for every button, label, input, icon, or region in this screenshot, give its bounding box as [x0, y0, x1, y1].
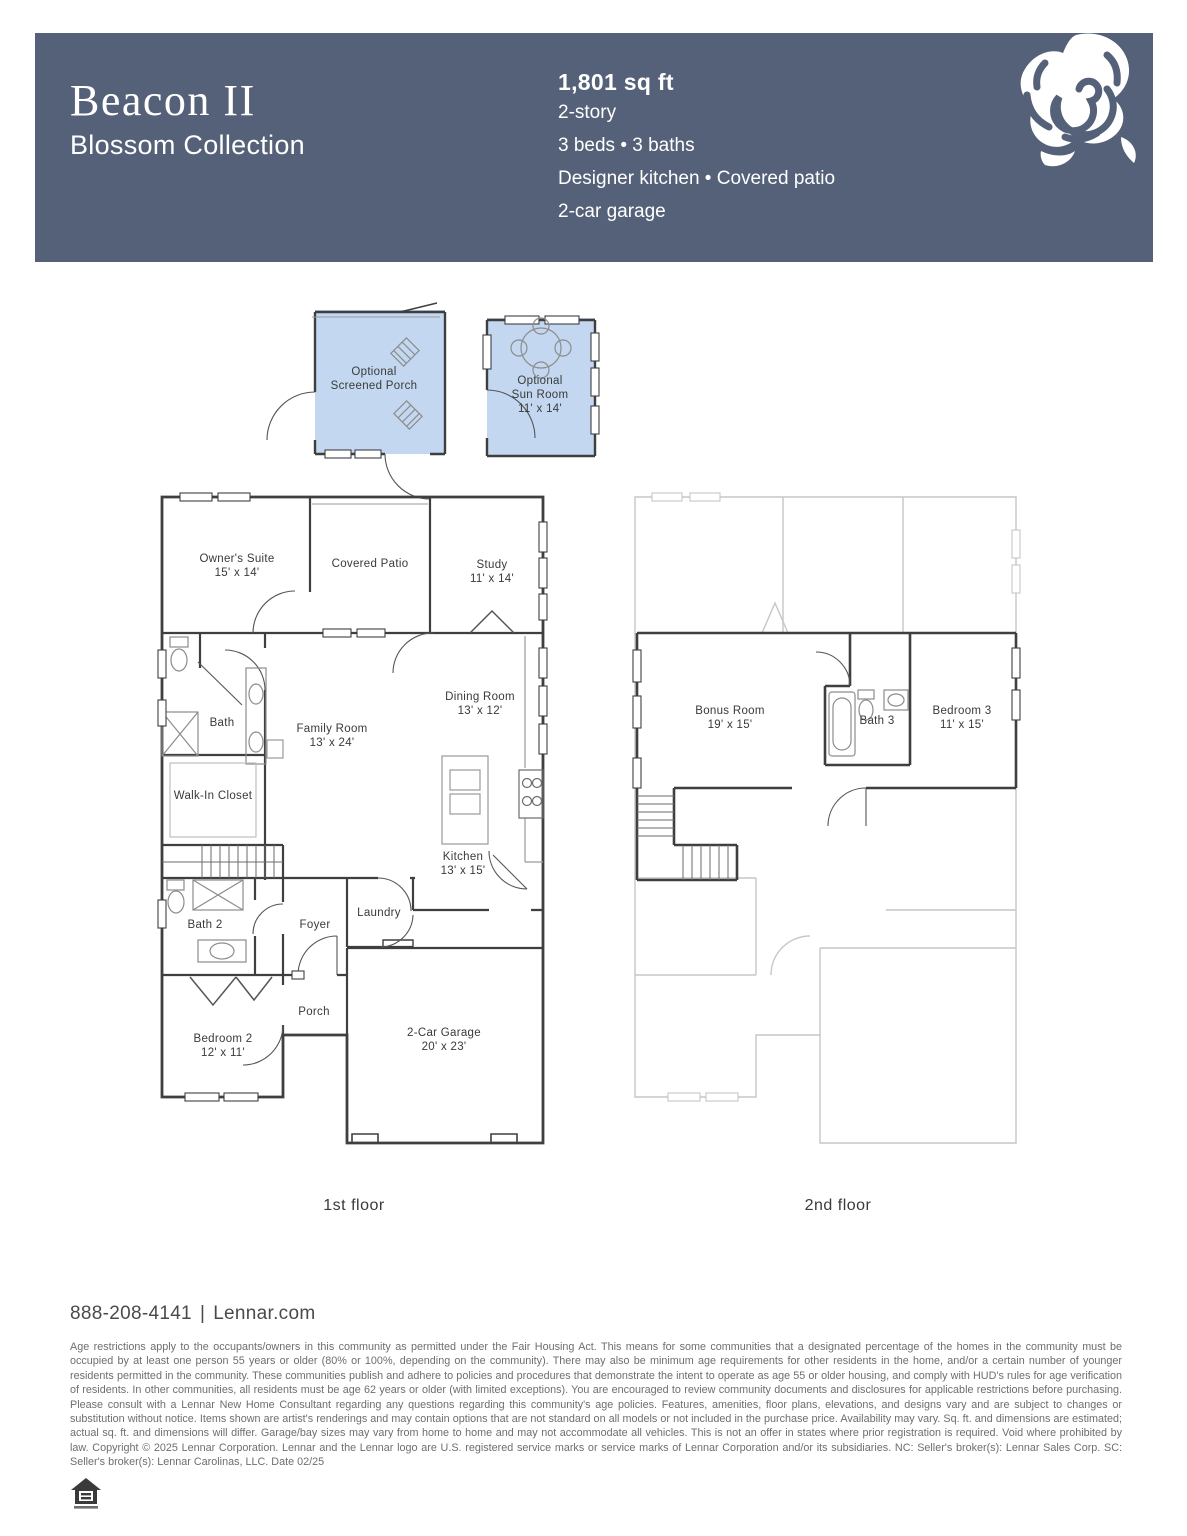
room-label-bedroom-3: Bedroom 3	[933, 705, 992, 717]
room-label-foyer: Foyer	[300, 919, 331, 931]
room-label-sun-room-2: Sun Room	[512, 389, 569, 401]
first-floor-label: 1st floor	[323, 1197, 385, 1214]
room-label-bedroom-2: Bedroom 2	[194, 1033, 253, 1045]
room-label-screened-porch-2: Screened Porch	[331, 380, 418, 392]
room-label-bonus-room: Bonus Room	[695, 705, 764, 717]
room-label-sun-room: Optional	[517, 375, 562, 387]
room-label-laundry: Laundry	[357, 907, 401, 919]
room-dims-bedroom-3: 11' x 15'	[940, 719, 984, 731]
equal-housing-icon	[70, 1477, 102, 1516]
contact-line: 888-208-4141|Lennar.com	[70, 1303, 315, 1325]
spec-garage: 2-car garage	[558, 195, 835, 228]
room-label-garage: 2-Car Garage	[407, 1027, 481, 1039]
room-dims-dining-room: 13' x 12'	[458, 705, 503, 717]
room-label-family-room: Family Room	[296, 723, 367, 735]
optional-screened-porch: Optional Screened Porch	[267, 303, 445, 499]
spec-beds-baths: 3 beds • 3 baths	[558, 129, 835, 162]
room-label-study: Study	[477, 559, 508, 571]
second-floor-label: 2nd floor	[805, 1197, 872, 1214]
room-label-dining-room: Dining Room	[445, 691, 515, 703]
room-dims-family-room: 13' x 24'	[310, 737, 355, 749]
spec-story: 2-story	[558, 96, 835, 129]
room-dims-owners-suite: 15' x 14'	[215, 567, 260, 579]
rose-icon	[1001, 33, 1151, 185]
spec-kitchen-patio: Designer kitchen • Covered patio	[558, 162, 835, 195]
room-dims-garage: 20' x 23'	[422, 1041, 467, 1053]
room-dims-sun-room: 11' x 14'	[518, 403, 562, 415]
title-block: Beacon II Blossom Collection	[70, 75, 305, 161]
sqft-value: 1,801 sq ft	[558, 69, 835, 96]
contact-separator: |	[200, 1303, 205, 1324]
room-label-bath-3: Bath 3	[859, 715, 894, 727]
plan-title: Beacon II	[70, 75, 305, 126]
website-link[interactable]: Lennar.com	[213, 1303, 315, 1324]
flyer-page: Beacon II Blossom Collection 1,801 sq ft…	[0, 0, 1187, 1536]
spec-list: 1,801 sq ft 2-story 3 beds • 3 baths Des…	[558, 69, 835, 228]
room-label-porch: Porch	[298, 1006, 330, 1018]
room-label-covered-patio: Covered Patio	[332, 558, 409, 570]
first-floor-plan: Owner's Suite 15' x 14' Covered Patio St…	[158, 493, 547, 1214]
room-dims-bonus-room: 19' x 15'	[708, 719, 753, 731]
room-label-bath: Bath	[210, 717, 235, 729]
room-dims-study: 11' x 14'	[470, 573, 514, 585]
optional-sun-room: Optional Sun Room 11' x 14'	[483, 316, 599, 456]
room-label-kitchen: Kitchen	[443, 851, 483, 863]
room-label-bath-2: Bath 2	[187, 919, 222, 931]
room-label-owners-suite: Owner's Suite	[199, 553, 274, 565]
legal-disclaimer: Age restrictions apply to the occupants/…	[70, 1340, 1122, 1470]
second-floor-plan: Bonus Room 19' x 15' Bath 3 Bedroom 3 11…	[633, 493, 1020, 1214]
room-label-walk-in-closet: Walk-In Closet	[174, 790, 253, 802]
header-band: Beacon II Blossom Collection 1,801 sq ft…	[35, 33, 1153, 262]
room-dims-kitchen: 13' x 15'	[441, 865, 486, 877]
phone-number: 888-208-4141	[70, 1303, 192, 1324]
collection-subtitle: Blossom Collection	[70, 130, 305, 161]
room-label-screened-porch: Optional	[351, 366, 396, 378]
floor-plans: Optional Screened Porch Optional Sun Roo…	[0, 280, 1187, 1260]
room-dims-bedroom-2: 12' x 11'	[201, 1047, 245, 1059]
